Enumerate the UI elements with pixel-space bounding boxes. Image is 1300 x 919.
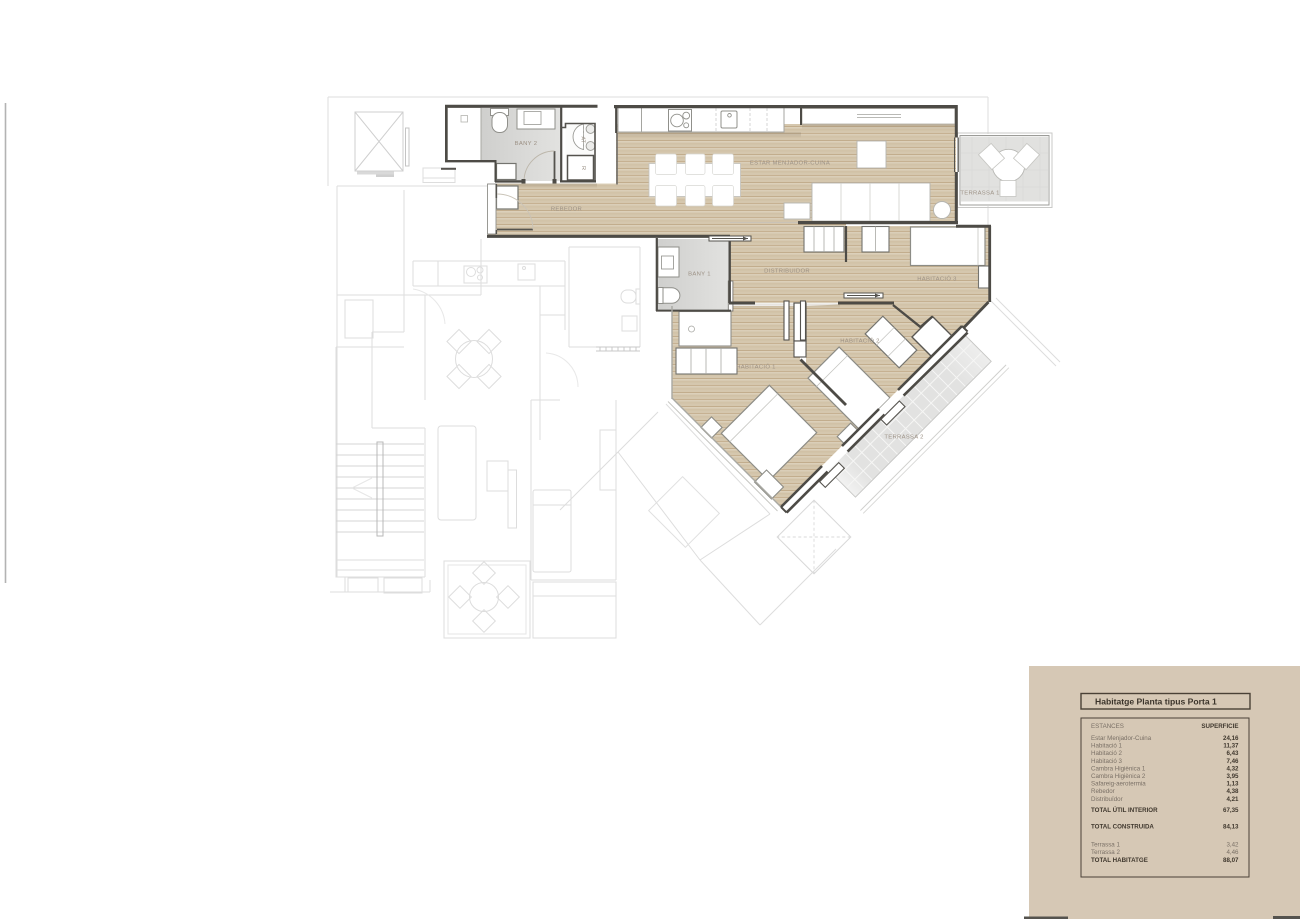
svg-text:TERRASSA 2: TERRASSA 2 [884,435,923,441]
svg-text:67,35: 67,35 [1223,807,1239,814]
svg-text:R: R [580,166,586,170]
svg-text:24,16: 24,16 [1223,735,1239,742]
svg-text:Terrassa 2: Terrassa 2 [1091,849,1120,856]
svg-text:TOTAL ÚTIL INTERIOR: TOTAL ÚTIL INTERIOR [1091,807,1158,814]
svg-text:84,13: 84,13 [1223,824,1239,831]
svg-text:1,13: 1,13 [1226,781,1239,788]
svg-text:HABITACIÓ 1: HABITACIÓ 1 [736,364,776,371]
svg-text:4,46: 4,46 [1226,849,1239,856]
svg-text:ESTAR MENJADOR-CUINA: ESTAR MENJADOR-CUINA [750,161,830,167]
svg-text:HABITACIÓ 3: HABITACIÓ 3 [917,276,957,283]
svg-text:88,07: 88,07 [1223,857,1239,864]
svg-text:3,95: 3,95 [1226,773,1239,780]
svg-text:11,37: 11,37 [1223,743,1239,750]
svg-text:SUPERFICIE: SUPERFICIE [1201,723,1238,730]
svg-text:Habitació 2: Habitació 2 [1091,750,1123,757]
svg-text:6,43: 6,43 [1226,750,1239,757]
svg-text:Cambra Higiènica 2: Cambra Higiènica 2 [1091,773,1146,780]
svg-text:3,42: 3,42 [1226,842,1239,849]
svg-text:Cambra Higiènica 1: Cambra Higiènica 1 [1091,765,1146,772]
svg-text:Terrassa 1: Terrassa 1 [1091,842,1120,849]
svg-text:Habitació 1: Habitació 1 [1091,743,1123,750]
svg-text:4,21: 4,21 [1226,796,1239,803]
svg-text:Habitació 3: Habitació 3 [1091,758,1123,765]
svg-text:Safareig-aerotermia: Safareig-aerotermia [1091,781,1146,788]
svg-text:Estar Menjador-Cuina: Estar Menjador-Cuina [1091,735,1152,742]
svg-text:BANY 2: BANY 2 [515,141,538,147]
svg-text:HABITACIÓ 2: HABITACIÓ 2 [840,338,880,345]
svg-text:4,38: 4,38 [1226,788,1239,795]
svg-text:Habitatge Planta tipus Porta 1: Habitatge Planta tipus Porta 1 [1095,697,1217,707]
svg-text:7,46: 7,46 [1226,758,1239,765]
svg-text:TOTAL HABITATGE: TOTAL HABITATGE [1091,857,1148,864]
svg-text:Distribuïdor: Distribuïdor [1091,796,1123,803]
svg-text:4,32: 4,32 [1226,765,1239,772]
svg-text:ESTANCES: ESTANCES [1091,723,1124,730]
svg-text:TERRASSA 1: TERRASSA 1 [960,191,999,197]
svg-text:Rebedor: Rebedor [1091,788,1115,795]
svg-text:DISTRIBUIDOR: DISTRIBUIDOR [764,269,810,275]
svg-text:AT: AT [580,137,586,144]
svg-text:BANY 1: BANY 1 [688,272,711,278]
svg-text:REBEDOR: REBEDOR [551,207,582,213]
svg-text:TOTAL CONSTRUIDA: TOTAL CONSTRUIDA [1091,824,1154,831]
